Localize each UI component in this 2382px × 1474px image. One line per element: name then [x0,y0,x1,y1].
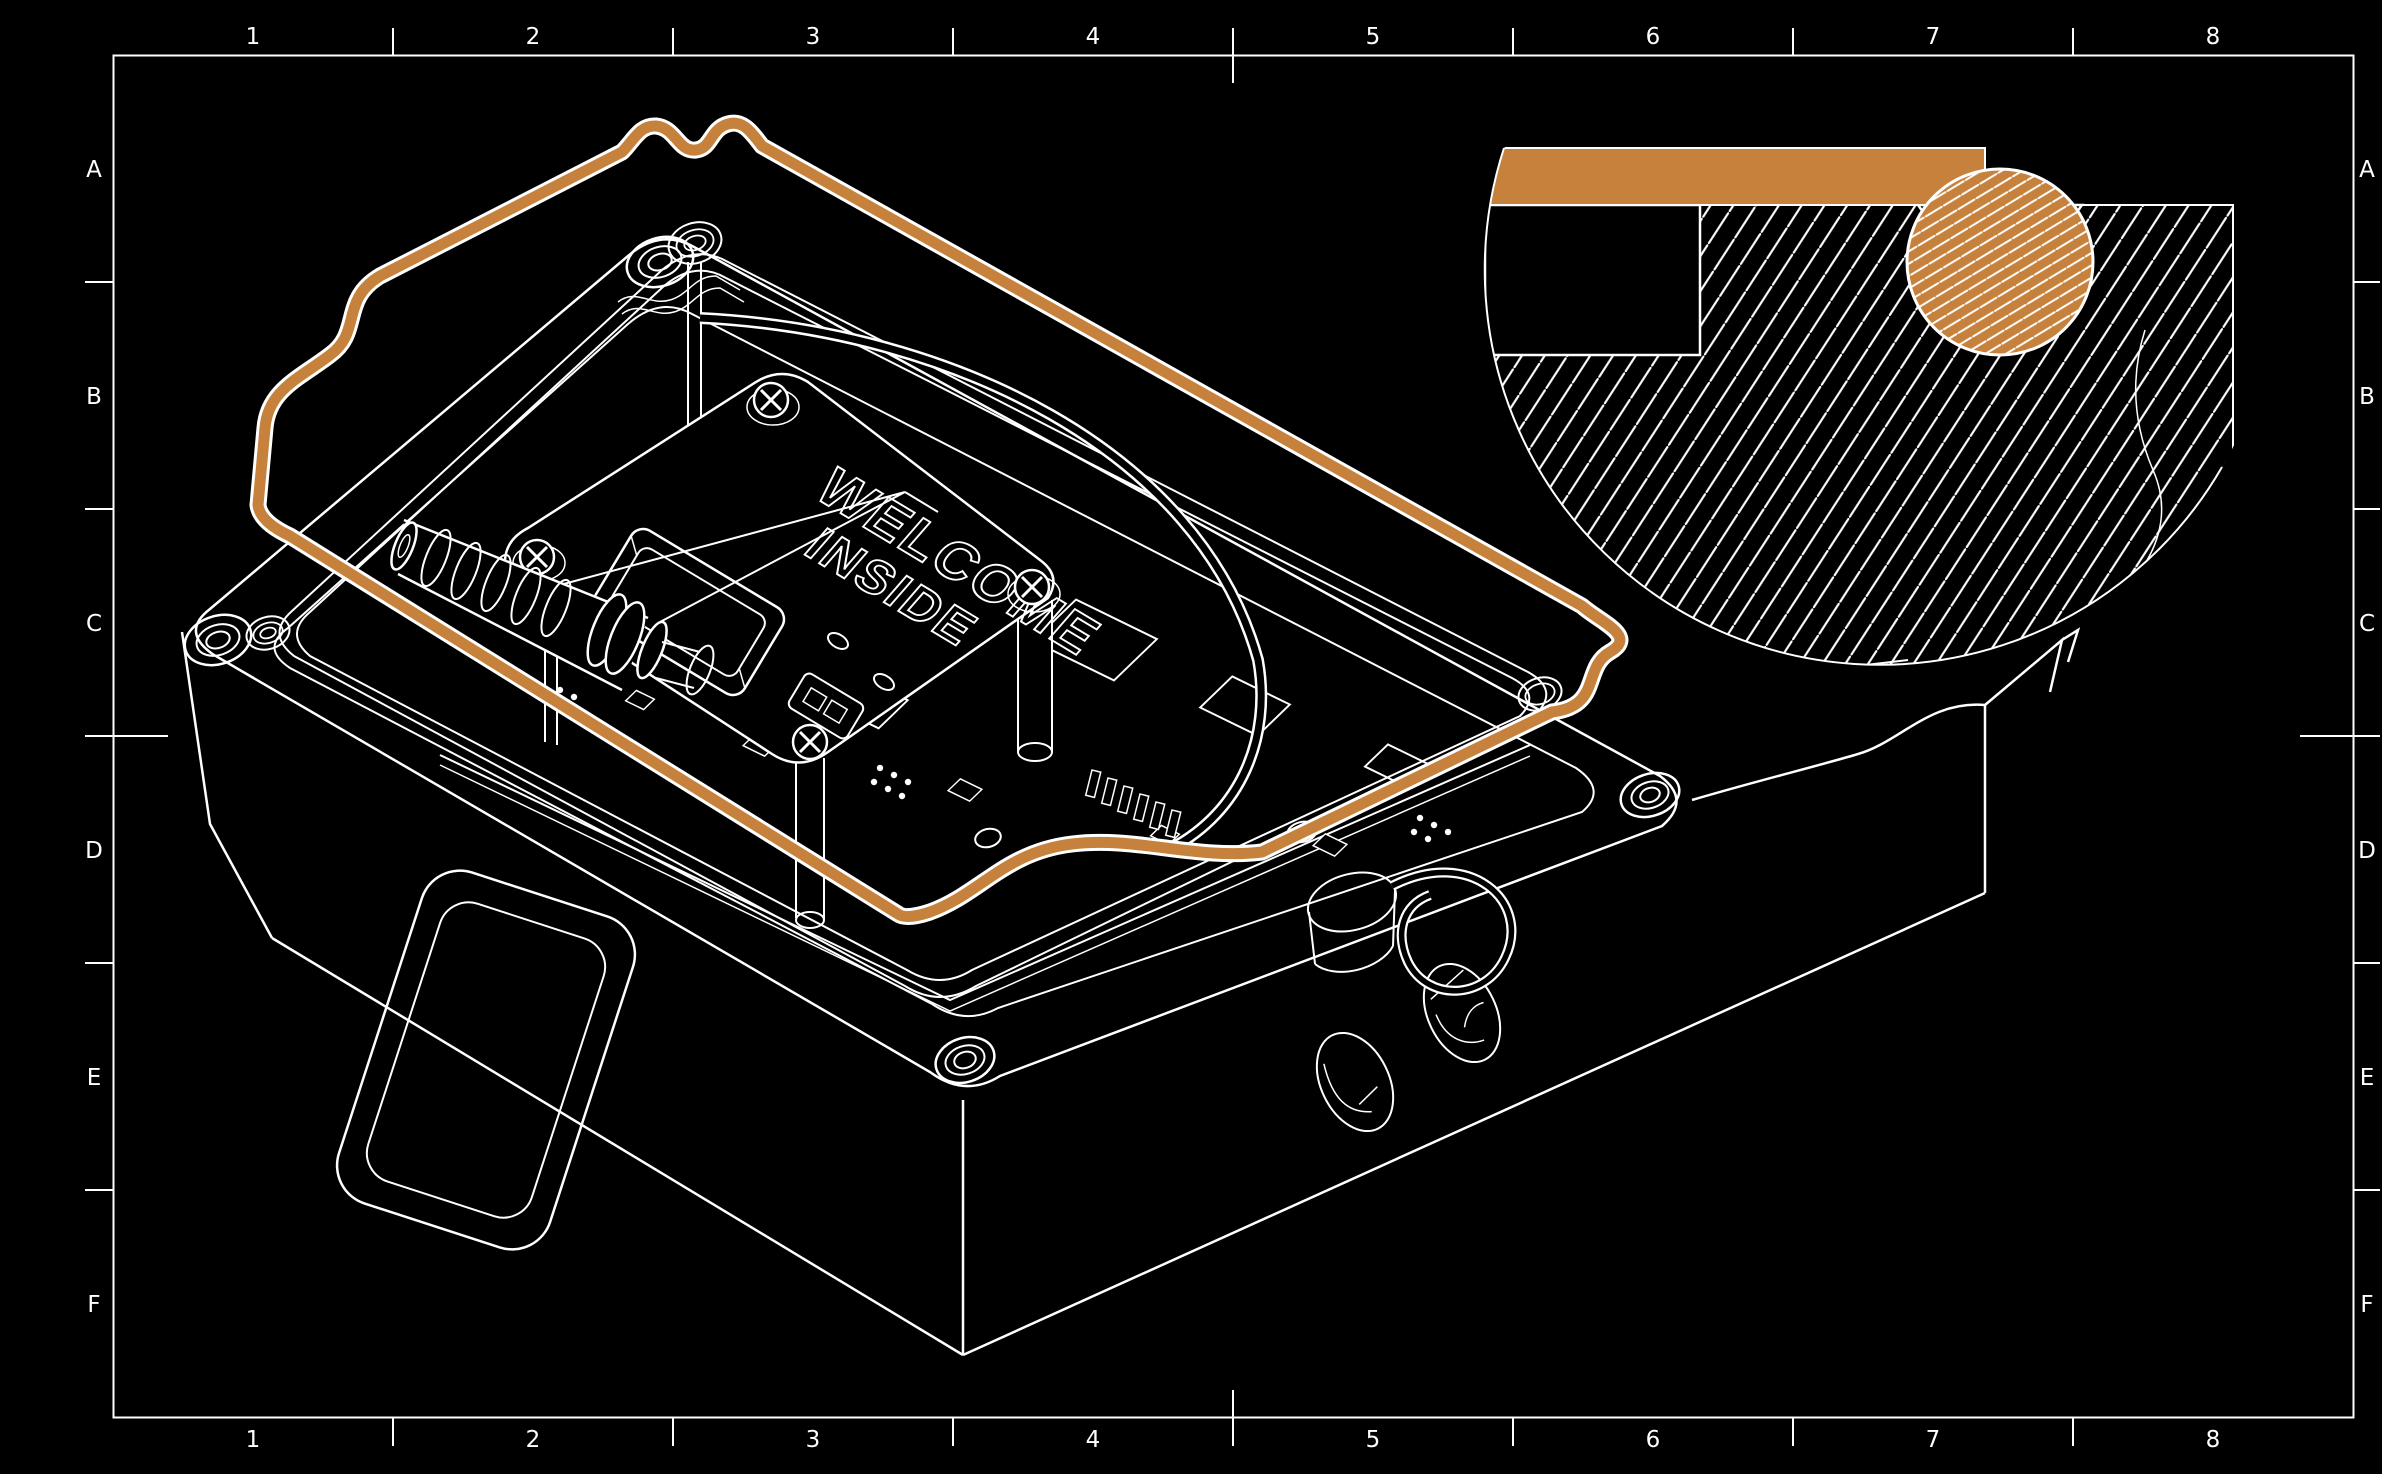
zone-label: 7 [1926,1427,1941,1453]
zone-label: F [87,1292,100,1318]
phillips-screw [793,725,827,759]
zone-label: E [2360,1065,2375,1091]
zone-label: 6 [1646,24,1661,50]
technical-drawing: 1 2 3 4 5 6 7 8 1 2 3 4 5 6 7 8 A B C D … [0,0,2382,1474]
zone-label: 1 [246,24,261,50]
oring-cross-section [1907,169,2093,355]
zone-label: 5 [1366,24,1381,50]
zone-label: D [2358,838,2376,864]
zone-label: E [87,1065,102,1091]
zone-label: 2 [526,24,541,50]
zone-label: 4 [1086,1427,1101,1453]
zone-label: 3 [806,1427,821,1453]
zone-label: B [2359,384,2375,410]
zone-label: A [2359,157,2375,183]
frame-ticks-left [85,282,168,1190]
mounting-flange [327,860,646,1260]
zone-labels-rows-left: A B C D E F [85,157,103,1318]
zone-label: 1 [246,1427,261,1453]
zone-label: 4 [1086,24,1101,50]
section-gasket-bar [1485,148,1985,205]
zone-label: B [86,384,102,410]
zone-label: 8 [2206,24,2221,50]
frame-ticks-right [2300,282,2380,1190]
flange-cutout [359,895,613,1226]
zone-label: F [2360,1292,2373,1318]
zone-label: C [2359,611,2375,637]
ic-chip [1200,676,1290,735]
zone-label: 7 [1926,24,1941,50]
cable-loop [1392,872,1511,990]
zone-label: 2 [526,1427,541,1453]
zone-label: A [86,157,102,183]
zone-label: 3 [806,24,821,50]
drawing-sheet: 1 2 3 4 5 6 7 8 1 2 3 4 5 6 7 8 A B C D … [0,0,2382,1474]
zone-label: 6 [1646,1427,1661,1453]
section-lid-block [1485,205,1700,355]
zone-label: C [86,611,102,637]
screw-boss [178,607,258,674]
zone-labels-rows-right: A B C D E F [2358,157,2376,1318]
zone-label: D [85,838,103,864]
zone-label: 8 [2206,1427,2221,1453]
zone-label: 5 [1366,1427,1381,1453]
lid-gasket-groove-waves [618,276,744,314]
